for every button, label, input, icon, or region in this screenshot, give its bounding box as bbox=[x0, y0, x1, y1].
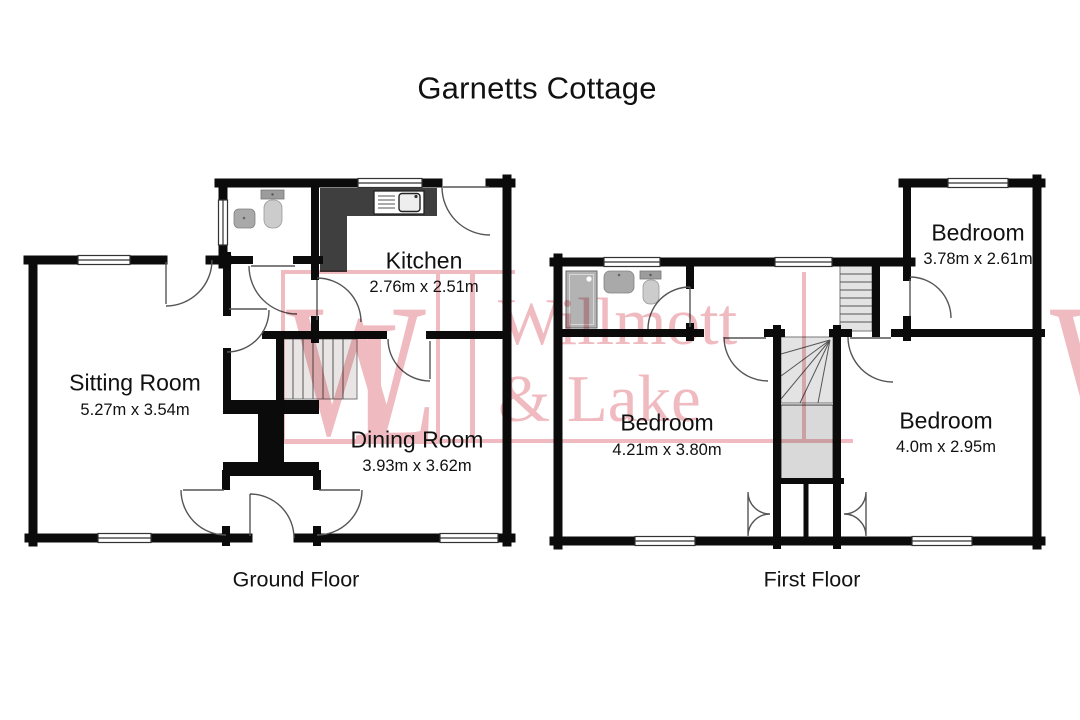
wc-toilet-icon bbox=[261, 190, 284, 228]
room-label-bedroom-right: Bedroom bbox=[899, 410, 992, 433]
floorplan-drawing: W L Willmott & Lake W bbox=[0, 0, 1080, 720]
watermark-separator-bar bbox=[470, 274, 475, 440]
room-dims-kitchen: 2.76m x 2.51m bbox=[369, 279, 478, 296]
room-label-sitting-room: Sitting Room bbox=[69, 372, 201, 395]
room-label-dining-room: Dining Room bbox=[351, 429, 484, 452]
room-label-bedroom-left: Bedroom bbox=[620, 412, 713, 435]
watermark-name-line1: Willmott bbox=[498, 285, 738, 359]
watermark-monogram-w-clipped: W bbox=[1050, 265, 1080, 476]
room-label-bedroom-top: Bedroom bbox=[931, 222, 1024, 245]
floorplan-page: W L Willmott & Lake W Garnetts Cottage S… bbox=[0, 0, 1080, 720]
first-floor-caption: First Floor bbox=[764, 569, 861, 591]
first-floor-stairs bbox=[781, 266, 872, 403]
wc-sink-icon bbox=[234, 209, 255, 228]
ground-floor-caption: Ground Floor bbox=[233, 569, 360, 591]
kitchen-sink-icon bbox=[374, 191, 424, 214]
room-dims-bedroom-left: 4.21m x 3.80m bbox=[612, 442, 721, 459]
room-dims-dining-room: 3.93m x 3.62m bbox=[362, 458, 471, 475]
room-dims-sitting-room: 5.27m x 3.54m bbox=[80, 402, 189, 419]
room-dims-bedroom-right: 4.0m x 2.95m bbox=[896, 439, 996, 456]
room-label-kitchen: Kitchen bbox=[386, 250, 463, 273]
page-title: Garnetts Cottage bbox=[417, 73, 656, 104]
room-dims-bedroom-top: 3.78m x 2.61m bbox=[923, 251, 1032, 268]
